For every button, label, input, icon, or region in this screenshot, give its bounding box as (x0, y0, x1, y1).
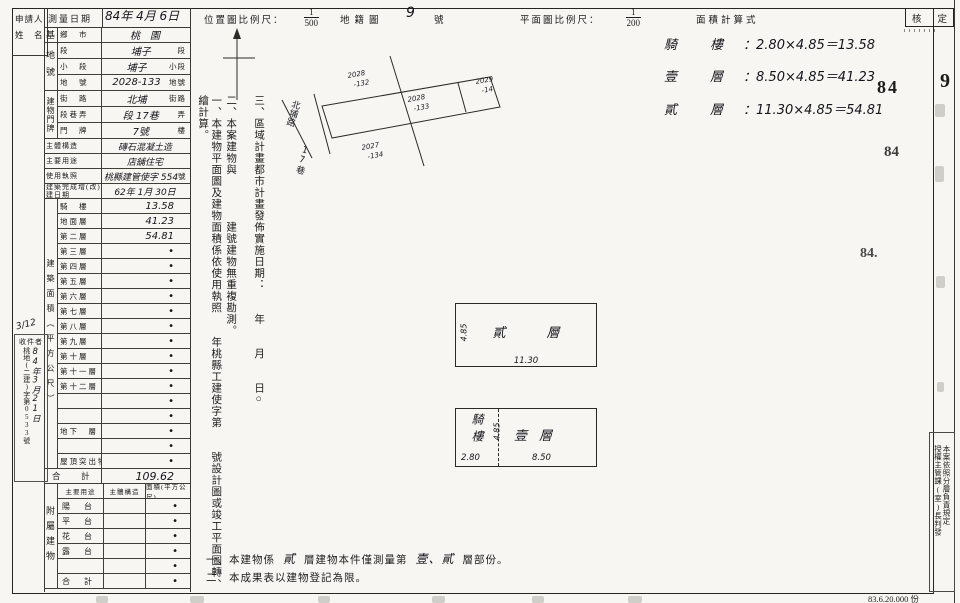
row-label: 段 (58, 43, 102, 58)
cadastre-map-number: 9 (406, 5, 415, 21)
floor-value-handwritten: • (104, 351, 186, 362)
bottom-edge-fragment (432, 596, 445, 603)
calc-line-arcade: 騎 樓 ：2.80×4.85＝13.58 (664, 34, 875, 53)
floor-value-handwritten: • (104, 336, 186, 347)
row-value-handwritten: 北埔 (104, 91, 169, 106)
table-row: • (58, 409, 190, 424)
row-label: 使用執照 (44, 169, 102, 183)
floor-label: 第八層 (58, 319, 102, 333)
table-row: 鄉 市 桃 園 (58, 27, 190, 43)
row-value-printed-suffix: 弄 (178, 109, 187, 120)
survey-date-value: 84年 4月 6日 (105, 7, 179, 24)
floor-label: 第十二層 (58, 379, 102, 393)
row-value: 埔子 段 (102, 43, 190, 58)
calc-formula: ：8.50×4.85＝41.23 (743, 66, 875, 85)
annex-use-label: 陽 台 (58, 499, 104, 513)
applicant-label-line2: 姓 名 (15, 27, 47, 43)
group-cell-parcel: 地號 (44, 43, 58, 91)
second-floor-depth-dim: 4.85 (459, 324, 468, 342)
calc-label: 騎 樓 (664, 34, 733, 53)
table-row: 建築完成增(改)建日期 62年 1月 30日 (44, 184, 190, 199)
table-row: • (58, 394, 190, 409)
bottom-edge-fragment (96, 596, 108, 603)
floor-value: • (102, 319, 190, 333)
group-cell-doorplate-label: 建物門牌 (45, 97, 56, 133)
floor-value-handwritten: 13.58 (104, 201, 186, 212)
floor-value-handwritten: • (104, 291, 186, 302)
approval-box: 核 定 (905, 8, 954, 27)
table-row: 第十二層 • (58, 379, 190, 394)
annex-area-cell: • (146, 514, 190, 528)
floor-value: • (102, 439, 190, 453)
annex-area-value: • (146, 561, 190, 572)
annex-area-value: • (146, 531, 190, 542)
annex-header-row: 主要用途 主體構造 面積(平方公尺) (58, 484, 190, 499)
row-value-handwritten: 桃 園 (104, 27, 186, 42)
parcel-divider (458, 83, 466, 112)
note-text: 層部份。 (463, 555, 509, 566)
floor-label: 第十一層 (58, 364, 102, 378)
note-text: 一、本建物係 (206, 555, 275, 566)
floor-label: 第五層 (58, 274, 102, 288)
bottom-note-2: 二、本成果表以建物登記為限。 (206, 570, 367, 585)
lane-label: 17巷 (293, 145, 311, 176)
floor-label: 第九層 (58, 334, 102, 348)
year-stamp-84-top: 84 (877, 77, 899, 98)
table-row: 合 計 • (58, 574, 190, 589)
table-row: 使用執照 桃縣建管使字 554 號 (44, 169, 190, 184)
total-value-handwritten: 109.62 (104, 470, 186, 483)
bleed-smudge (937, 382, 944, 392)
table-row: 第三層 • (58, 244, 190, 259)
row-value-printed-suffix: 街路 (169, 93, 186, 104)
scale-numerator: 1 (304, 7, 319, 18)
year-stamp-84-mid: 84 (884, 144, 899, 161)
table-row: 第五層 • (58, 274, 190, 289)
table-row: 地 號 2028-133 地號 (58, 75, 190, 91)
table-row: • (58, 439, 190, 454)
row-value-handwritten: 埔子 (104, 43, 178, 58)
floor-label (58, 439, 102, 453)
row-value: 店舖住宅 (102, 154, 190, 168)
page-number-mark: 9 (940, 70, 950, 93)
plan-scale-label: 平面圖比例尺： (520, 12, 601, 26)
floor-value-handwritten: • (104, 381, 186, 392)
row-value: 北埔 街路 (102, 91, 190, 106)
bottom-edge-fragment (628, 596, 642, 603)
floor-label: 騎 樓 (58, 199, 102, 213)
floor-value: 54.81 (102, 229, 190, 243)
annex-structure-cell (104, 544, 146, 558)
table-row: 地下 層 • (58, 424, 190, 439)
row-value-handwritten: 2028-133 (104, 77, 169, 88)
calc-label: 貳 層 (664, 99, 733, 118)
floor-value: • (102, 364, 190, 378)
ruler-tick-marks (904, 29, 938, 32)
area-calc-title: 面積計算式 (696, 12, 759, 26)
total-label: 合 計 (44, 469, 102, 483)
table-row: 主體構造 磚石混凝土造 (44, 139, 190, 154)
row-value-printed-suffix: 樓 (178, 125, 187, 136)
survey-form-page: 申請人 姓 名 測量日期 84年 4月 6日 位置圖比例尺： 1 500 地籍圖… (0, 0, 960, 603)
floor-area-rows: 騎 樓 13.58 地面層 41.23 第二層 54.81 第三層 (58, 199, 190, 469)
floor-label: 第二層 (58, 229, 102, 243)
annex-area-cell: • (146, 529, 190, 543)
table-row: 第九層 • (58, 334, 190, 349)
floor-label: 第七層 (58, 304, 102, 318)
location-scale-label: 位置圖比例尺： (204, 12, 285, 26)
first-floor-width-dim: 8.50 (532, 453, 551, 463)
floor-label: 屋頂突出物 (58, 454, 102, 468)
row-value-handwritten: 磚石混凝土造 (104, 140, 186, 153)
row-value: 2028-133 地號 (102, 75, 190, 90)
group-cell-annex: 附屬建物 (44, 484, 58, 589)
receipt-stamp-box: 收件者 桃地(二建)字第0533號 84年3月21日 (14, 334, 48, 482)
calc-formula: ：2.80×4.85＝13.58 (743, 34, 875, 53)
table-row: 第七層 • (58, 304, 190, 319)
table-right-rule (190, 8, 191, 592)
bleed-smudge (935, 104, 945, 117)
table-row: 第二層 54.81 (58, 229, 190, 244)
receipt-columns: 桃地(二建)字第0533號 84年3月21日 (23, 347, 40, 481)
receipt-date-column: 84年3月21日 (31, 347, 40, 481)
second-floor-width-dim: 11.30 (456, 356, 596, 366)
floor-label: 地面層 (58, 214, 102, 228)
annex-area-cell: • (146, 544, 190, 558)
row-value: 桃 園 (102, 27, 190, 42)
table-row: 地面層 41.23 (58, 214, 190, 229)
parcel-number-right-sub: -14 (481, 85, 494, 95)
bottom-note-1: 一、本建物係貳層建物本件僅測量第壹、貳層部份。 (206, 550, 509, 567)
annex-rows: 陽 台 • 平 台 • 花 台 • (58, 499, 190, 589)
row-value: 7號 樓 (102, 123, 190, 138)
group-cell-doorplate: 建物門牌 (44, 91, 58, 139)
floor-value-handwritten: • (104, 456, 186, 467)
row-label: 主體構造 (44, 139, 102, 153)
floor-value: 13.58 (102, 199, 190, 213)
row-value: 桃縣建管使字 554 號 (102, 169, 190, 183)
row-value-handwritten: 桃縣建管使字 554 (104, 170, 178, 183)
parcel-number-top-sub: -132 (353, 78, 371, 89)
note-handwritten-floor: 貳 (275, 552, 304, 566)
table-row: 街 路 北埔 街路 (58, 91, 190, 107)
annex-header-use: 主要用途 (58, 484, 104, 498)
location-scale-fraction: 1 500 (304, 7, 319, 29)
calc-label: 壹 層 (664, 66, 733, 85)
annex-area-value: • (146, 576, 190, 587)
table-row: 第十層 • (58, 349, 190, 364)
bottom-edge-fragment (190, 596, 204, 603)
table-row: 段巷弄 段 17巷 弄 (58, 107, 190, 123)
bleed-smudge (935, 166, 944, 182)
row-label: 鄉 市 (58, 27, 102, 42)
table-row: 門 牌 7號 樓 (58, 123, 190, 139)
annex-area-value: • (146, 546, 190, 557)
floor-value-handwritten: • (104, 396, 186, 407)
calc-formula: ：11.30×4.85＝54.81 (743, 99, 883, 118)
street-name-label: 北埔路 (283, 99, 301, 129)
receipt-title: 收件者 (19, 335, 43, 347)
floor-value: • (102, 304, 190, 318)
annex-use-label: 花 台 (58, 529, 104, 543)
scale-denominator: 200 (627, 18, 641, 28)
annex-structure-cell (104, 514, 146, 528)
row-value-handwritten: 62年 1月 30日 (104, 185, 186, 198)
floor-value-handwritten: • (104, 441, 186, 452)
annex-use-label: 平 台 (58, 514, 104, 528)
parcel-outline (322, 77, 500, 138)
basic-info-rows: 鄉 市 桃 園 段 埔子 段 小 段 埔子 小段 (58, 27, 190, 139)
floor-value-handwritten: • (104, 411, 186, 422)
row-value-handwritten: 段 17巷 (104, 107, 178, 122)
calc-line-first-floor: 壹 層 ：8.50×4.85＝41.23 (664, 66, 875, 85)
annex-header-area: 面積(平方公尺) (146, 484, 190, 498)
floor-value-handwritten: • (104, 366, 186, 377)
table-row: 陽 台 • (58, 499, 190, 514)
annex-structure-cell (104, 574, 146, 588)
row-label: 建築完成增(改)建日期 (44, 184, 102, 198)
building-info-rows: 主體構造 磚石混凝土造 主要用途 店舖住宅 使用執照 桃縣建管使字 554 號 (44, 139, 190, 199)
row-value-printed-suffix: 地號 (169, 77, 186, 88)
floor-label: 第六層 (58, 289, 102, 303)
floor-value: • (102, 394, 190, 408)
table-row: 第六層 • (58, 289, 190, 304)
table-row: 屋頂突出物 • (58, 454, 190, 469)
annex-use-label: 露 台 (58, 544, 104, 558)
table-row: 花 台 • (58, 529, 190, 544)
table-row: 露 台 • (58, 544, 190, 559)
plan-scale-fraction: 1 200 (626, 7, 641, 29)
table-row: 第十一層 • (58, 364, 190, 379)
group-cell-site: 基 (44, 27, 58, 43)
annex-area-value: • (146, 516, 190, 527)
floor-value: 41.23 (102, 214, 190, 228)
row-value: 62年 1月 30日 (102, 184, 190, 198)
row-label: 街 路 (58, 91, 102, 106)
floor-label (58, 409, 102, 423)
vertical-note-1: 一、本建物平面圖及建物面積係依使用執照 年桃縣工建使字第 號設計圖或竣工平面圖轉… (196, 95, 222, 580)
floor-value-handwritten: 41.23 (104, 216, 186, 227)
approval-label-left: 核 (912, 11, 922, 25)
row-value-handwritten: 店舖住宅 (104, 155, 186, 168)
row-value: 段 17巷 弄 (102, 107, 190, 122)
bottom-edge-fragment (318, 596, 330, 603)
applicant-label-line1: 申請人 (15, 11, 47, 27)
floor-label: 第四層 (58, 259, 102, 273)
second-floor-label: 貳 層 (456, 322, 596, 341)
row-value-printed-suffix: 小段 (169, 61, 186, 72)
table-row: 第四層 • (58, 259, 190, 274)
survey-date-label: 測量日期 (48, 12, 92, 25)
table-row: 段 埔子 段 (58, 43, 190, 59)
cadastre-number-suffix: 號 (434, 12, 444, 26)
floor-value: • (102, 289, 190, 303)
bottom-edge-fragment (532, 596, 544, 603)
floor-value: • (102, 274, 190, 288)
annex-area-cell: • (146, 574, 190, 588)
floor-value: • (102, 334, 190, 348)
row-value-printed-suffix: 段 (178, 45, 187, 56)
annex-use-label (58, 559, 104, 573)
row-value-printed-suffix: 號 (178, 171, 187, 182)
bleed-smudge (936, 276, 945, 288)
row-label: 主要用途 (44, 154, 102, 168)
row-value-handwritten: 埔子 (104, 59, 169, 74)
floor-value: • (102, 379, 190, 393)
annex-side-label: 附屬建物 (44, 506, 57, 566)
floor-value: • (102, 454, 190, 468)
first-floor-plan: 騎樓 2.80 壹層 8.50 4.85 (455, 408, 597, 467)
table-row: 主要用途 店舖住宅 (44, 154, 190, 169)
floor-value: • (102, 349, 190, 363)
scale-numerator: 1 (626, 7, 641, 18)
receipt-number-column: 桃地(二建)字第0533號 (23, 347, 30, 481)
floor-label: 地下 層 (58, 424, 102, 438)
annex-structure-cell (104, 559, 146, 573)
location-map: 北埔路 17巷 2028 -132 2028 -133 2029 -14 202… (222, 28, 552, 213)
annex-area-value: • (146, 501, 190, 512)
annex-use-label: 合 計 (58, 574, 104, 588)
parcel-number-bottom-sub: -134 (367, 150, 384, 161)
floor-value-handwritten: • (104, 276, 186, 287)
first-floor-depth-dim: 4.85 (492, 423, 501, 441)
north-arrow-head (233, 28, 241, 39)
row-label: 門 牌 (58, 123, 102, 138)
floor-value-handwritten: • (104, 261, 186, 272)
floor-value: • (102, 409, 190, 423)
floor-value: • (102, 259, 190, 273)
floor-value-handwritten: 54.81 (104, 231, 186, 242)
date-cell-rule (102, 8, 103, 27)
total-row: 合 計 109.62 (44, 469, 190, 484)
approval-label-right: 定 (937, 11, 947, 25)
annex-structure-cell (104, 499, 146, 513)
row-value-handwritten: 7號 (104, 123, 178, 138)
annex-header-structure: 主體構造 (104, 484, 146, 498)
table-row: 小 段 埔子 小段 (58, 59, 190, 75)
annex-area-cell: • (146, 559, 190, 573)
delegation-statement-box: 授權主管課(室)長判發 本案依照分層負責規定 (929, 432, 955, 592)
total-value: 109.62 (102, 469, 190, 483)
year-stamp-84-low: 84. (860, 246, 878, 262)
second-floor-plan: 貳 層 4.85 11.30 (455, 303, 597, 367)
floor-value-handwritten: • (104, 306, 186, 317)
floor-label (58, 394, 102, 408)
arcade-label: 騎樓 (469, 413, 486, 447)
row-label: 地 號 (58, 75, 102, 90)
note-text: 層建物本件僅測量第 (304, 555, 408, 566)
delegation-line-right: 授權主管課(室)長判發 (934, 445, 942, 591)
floor-value-handwritten: • (104, 321, 186, 332)
floor-value-handwritten: • (104, 246, 186, 257)
group-cell-parcel-label: 地號 (44, 50, 57, 84)
delegation-line-left: 本案依照分層負責規定 (943, 445, 951, 591)
parcel-number-mid-sub: -133 (413, 102, 430, 113)
calc-line-second-floor: 貳 層 ：11.30×4.85＝54.81 (664, 99, 883, 118)
note-handwritten-floors: 壹、貳 (408, 552, 463, 566)
floor-value: • (102, 424, 190, 438)
floor-value: • (102, 244, 190, 258)
cadastre-map-label: 地籍圖 (340, 12, 384, 26)
arcade-width-dim: 2.80 (461, 453, 480, 463)
floor-label: 第三層 (58, 244, 102, 258)
table-row: 平 台 • (58, 514, 190, 529)
row-value: 磚石混凝土造 (102, 139, 190, 153)
annex-structure-cell (104, 529, 146, 543)
table-row: 騎 樓 13.58 (58, 199, 190, 214)
table-row: 第八層 • (58, 319, 190, 334)
first-floor-label: 壹層 (514, 425, 564, 444)
applicant-name-box: 申請人 姓 名 (12, 8, 48, 56)
row-label: 小 段 (58, 59, 102, 74)
table-row: • (58, 559, 190, 574)
floor-value-handwritten: • (104, 426, 186, 437)
floor-label: 第十層 (58, 349, 102, 363)
row-value: 埔子 小段 (102, 59, 190, 74)
row-label: 段巷弄 (58, 107, 102, 122)
print-run-info: 83.6.20.000 份 (868, 593, 919, 603)
annex-area-cell: • (146, 499, 190, 513)
